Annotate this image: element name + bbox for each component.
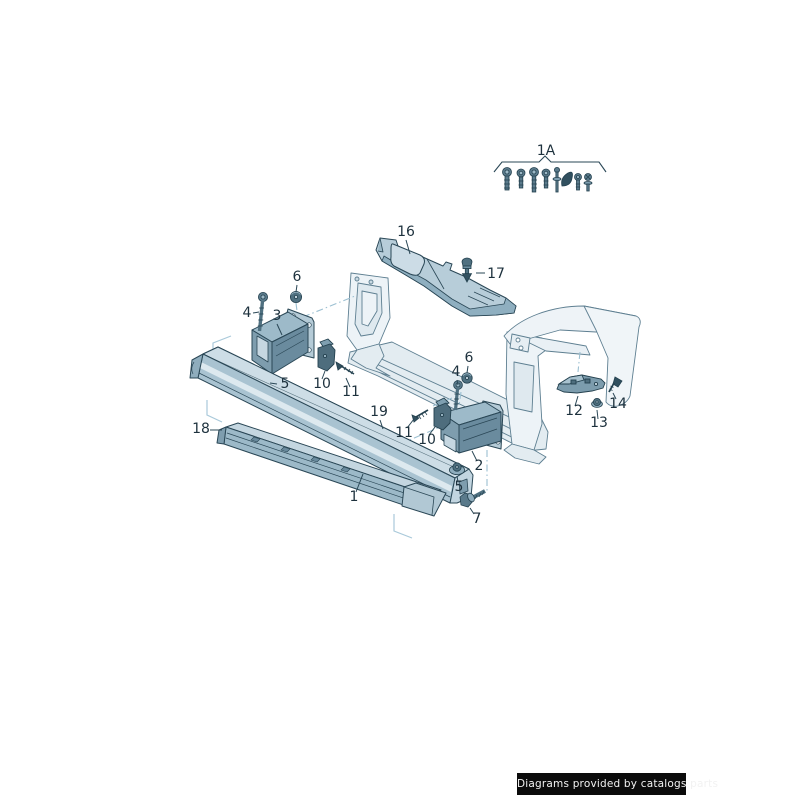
part-callout-10R[interactable]: 10	[418, 432, 436, 448]
watermark-badge: Diagrams provided by catalogs parts	[517, 773, 686, 795]
part-callout-5L[interactable]: 5	[281, 376, 290, 392]
part-callout-17[interactable]: 17	[487, 266, 505, 282]
callout-leader-6L	[296, 285, 297, 292]
part-callout-13[interactable]: 13	[590, 415, 608, 431]
bolt-small-icon	[575, 174, 582, 191]
part-callout-1[interactable]: 1	[350, 489, 359, 505]
bolt-large-icon	[503, 168, 512, 191]
part-callout-19[interactable]: 19	[370, 404, 388, 420]
part-callout-6L[interactable]: 6	[293, 269, 302, 285]
part-callout-2[interactable]: 2	[475, 458, 484, 474]
bolt-medium-icon	[517, 169, 525, 188]
part-callout-6R[interactable]: 6	[465, 350, 474, 366]
nut-13-icon	[592, 398, 603, 407]
part-callout-10L[interactable]: 10	[313, 376, 331, 392]
bolt-medium-icon	[542, 169, 550, 188]
part-callout-3[interactable]: 3	[273, 308, 282, 324]
exploded-parts-drawing: 1A16176435101119111064257118121314	[0, 0, 800, 800]
part-callout-4R[interactable]: 4	[452, 364, 461, 380]
screw-11-right-icon	[412, 410, 428, 422]
screw-star-icon	[584, 174, 592, 192]
fastener-kit-1a	[494, 156, 606, 192]
part-callout-12[interactable]: 12	[565, 403, 583, 419]
part-callout-11L[interactable]: 11	[342, 384, 360, 400]
part-callout-16[interactable]: 16	[397, 224, 415, 240]
part-callout-11R[interactable]: 11	[395, 425, 413, 441]
nut-6-left-icon	[290, 291, 301, 302]
part-callout-7[interactable]: 7	[473, 511, 482, 527]
bolt-long-icon	[530, 168, 539, 193]
part-10-bracket-left	[318, 339, 335, 371]
nut-6-right-icon	[462, 373, 472, 383]
callout-leader-4L	[253, 312, 259, 313]
clip-dark-icon	[562, 172, 573, 186]
part-callout-5R[interactable]: 5	[455, 479, 464, 495]
part-12-bracket	[557, 375, 605, 393]
part-callout-14[interactable]: 14	[609, 396, 627, 412]
parts-diagram: 1A16176435101119111064257118121314	[0, 0, 800, 800]
screw-thin-icon	[553, 167, 561, 192]
callout-leader-6R	[467, 366, 468, 373]
part-callout-18[interactable]: 18	[192, 421, 210, 437]
part-callout-1A[interactable]: 1A	[537, 143, 556, 159]
part-callout-4L[interactable]: 4	[243, 305, 252, 321]
